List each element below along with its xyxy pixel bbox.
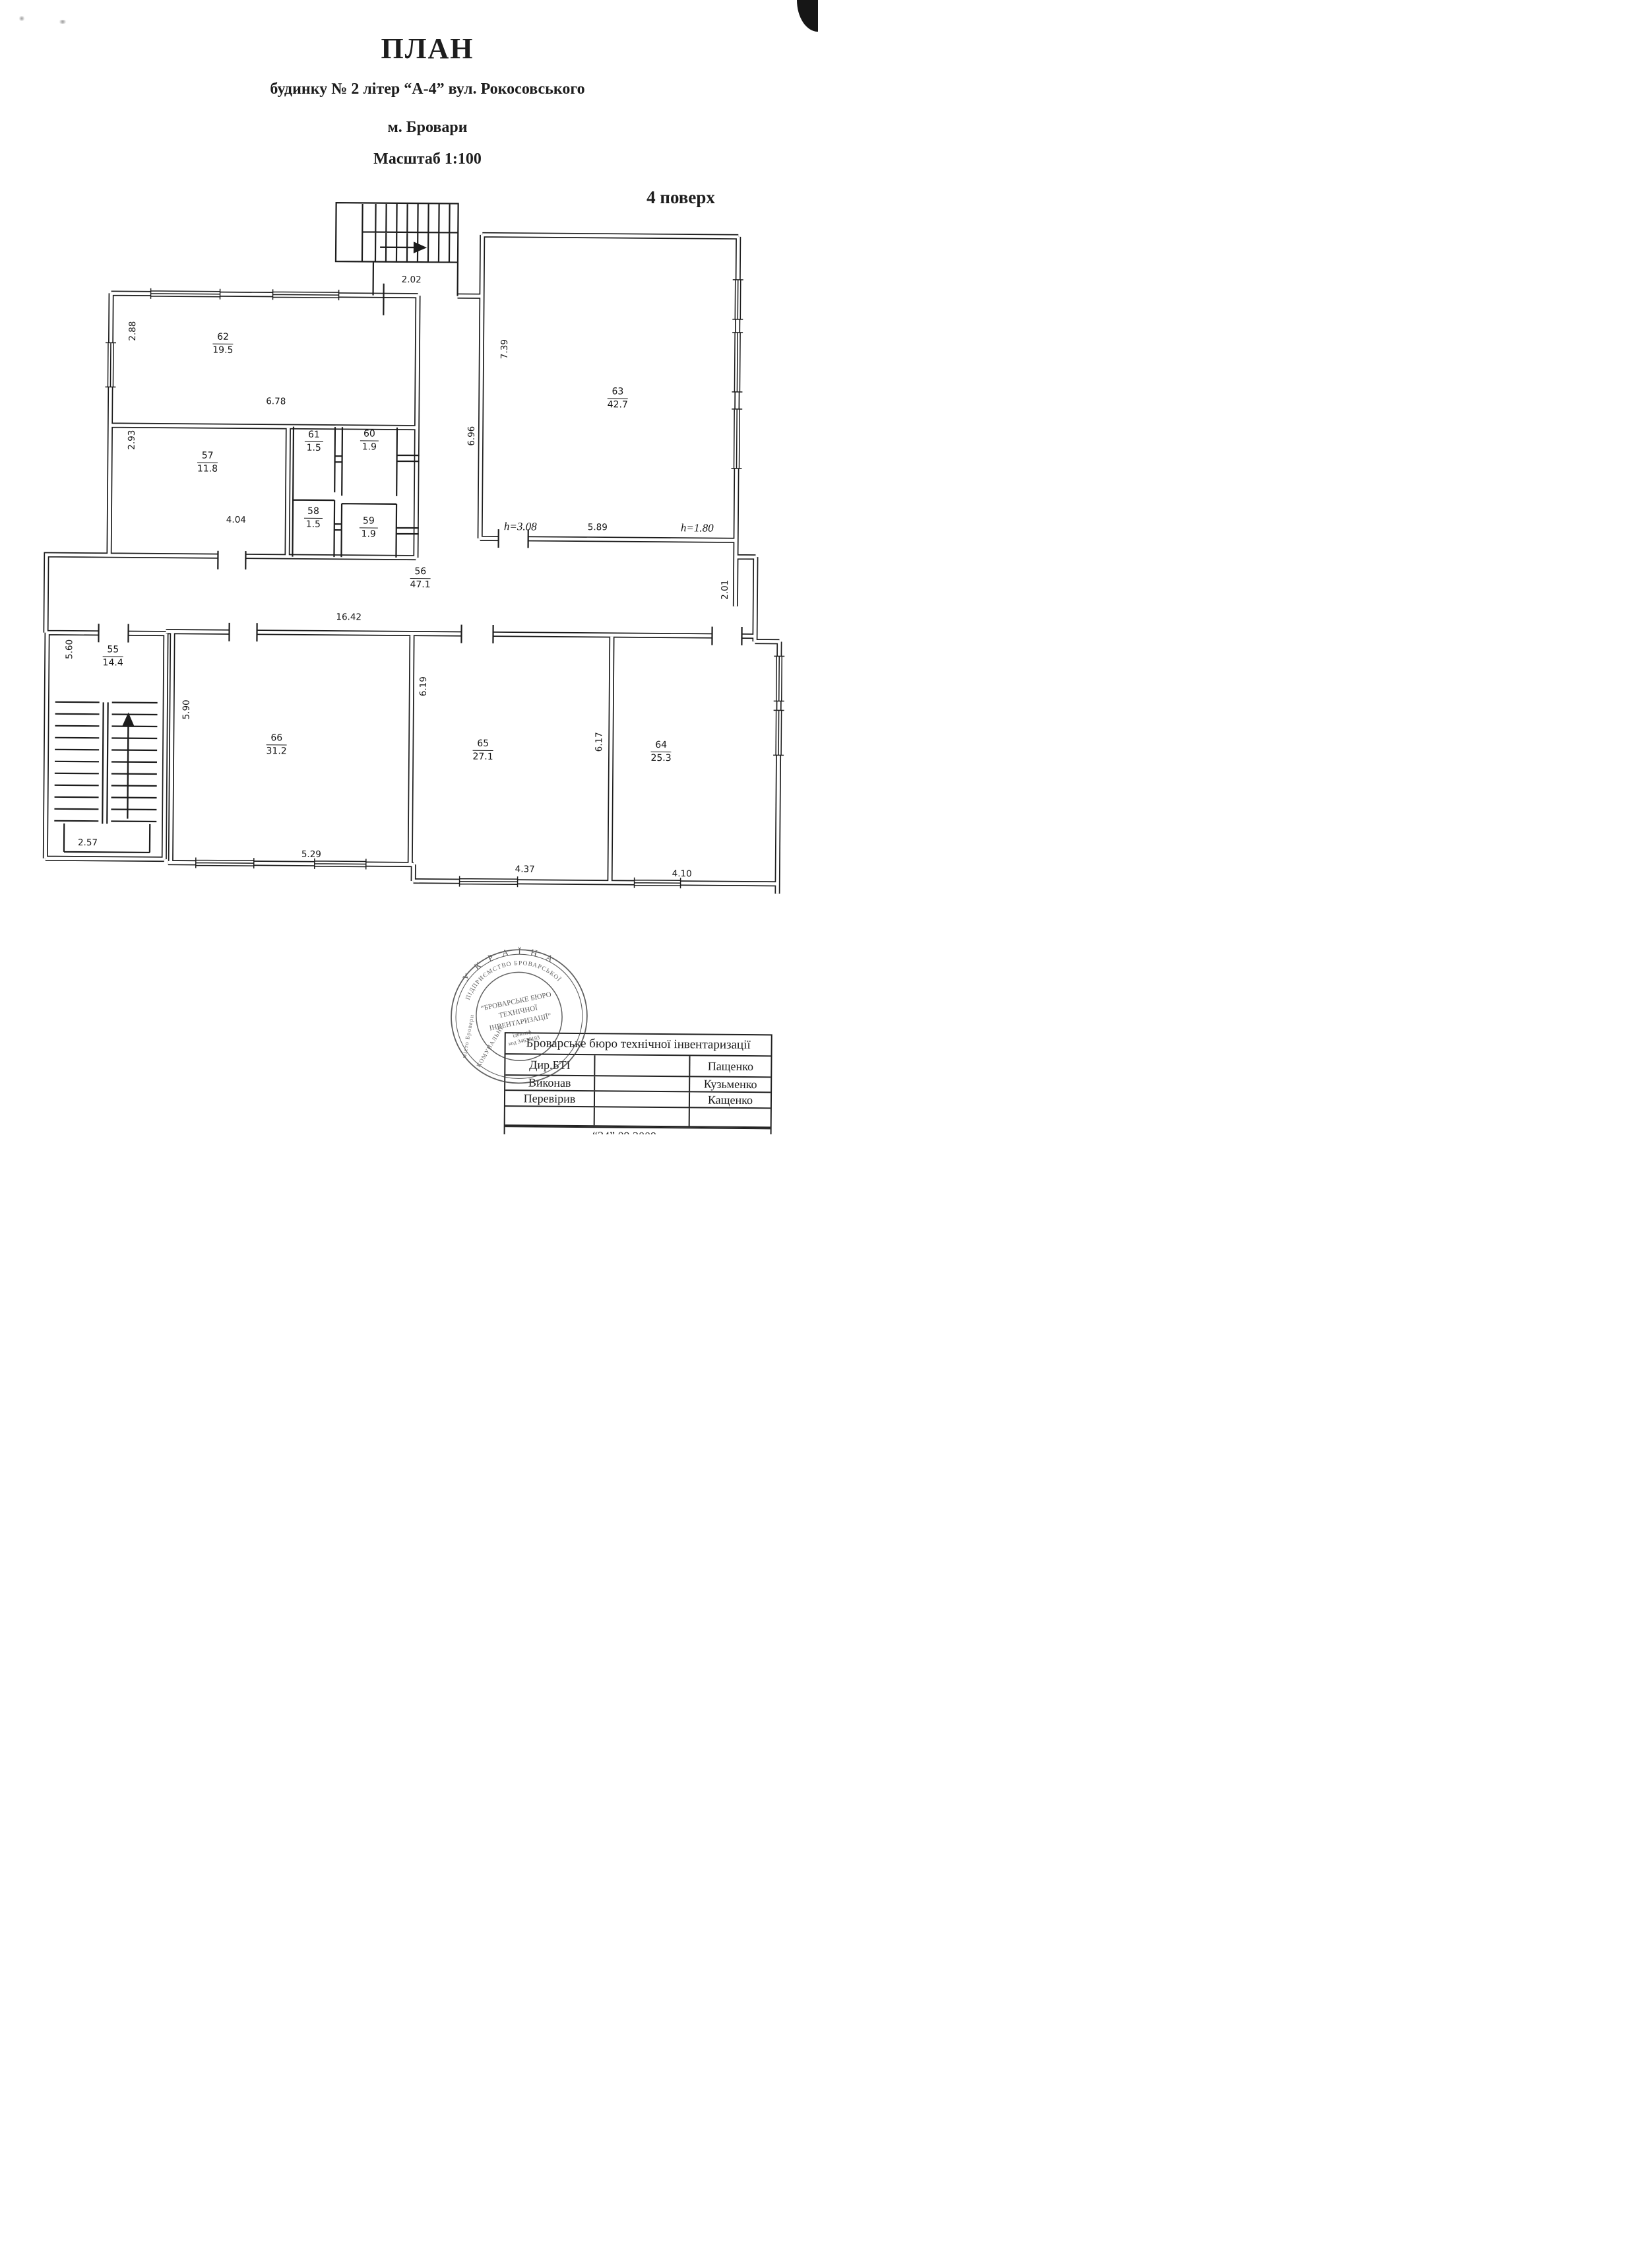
signature-cell (595, 1091, 690, 1107)
room-label-55: 5514.4 (103, 644, 123, 668)
dim-r55-width: 2.57 (78, 837, 98, 848)
dim-r66-width: 5.29 (301, 849, 321, 860)
room-label-58: 581.5 (304, 506, 323, 531)
bti-round-stamp: У К Р А Ї Н А ПІДПРИЄМСТВО БРОВАРСЬКОЇ м… (431, 928, 607, 1105)
dim-r65-left: 6.19 (418, 676, 429, 696)
name-cell: Пащенко (690, 1056, 771, 1076)
room-label-56: 5647.1 (410, 566, 430, 591)
stairs-and-partitions (54, 201, 745, 857)
scanned-floor-plan-page: ПЛАН будинку № 2 літер “А-4” вул. Рокосо… (0, 0, 818, 1134)
dim-r62-left: 2.88 (127, 321, 138, 341)
dim-corridor-right: 2.01 (720, 580, 730, 600)
stamp-left-lower-text: місто Бровари (460, 1014, 475, 1058)
walls-outer (44, 232, 782, 894)
signature-cell (595, 1076, 690, 1091)
dim-r57-left: 2.93 (127, 430, 137, 450)
dim-r57-width: 4.04 (226, 515, 246, 525)
table-row-empty (505, 1107, 771, 1128)
dim-corridor63-height: 6.96 (466, 426, 477, 446)
room-label-62: 6219.5 (212, 332, 233, 356)
room-label-66: 6631.2 (266, 732, 286, 757)
scan-skew-wrapper: 6219.5 5711.8 611.5 601.9 581.5 591.9 63… (0, 0, 818, 1134)
dim-r63-h-right: h=1.80 (681, 521, 714, 535)
name-cell: Кащенко (690, 1092, 771, 1107)
dim-vestibule-width: 2.02 (402, 275, 422, 285)
dim-r63-width: 5.89 (588, 522, 608, 533)
dim-corridor-width: 16.42 (336, 612, 362, 622)
room-label-60: 601.9 (360, 428, 379, 453)
room-label-63: 6342.7 (608, 386, 628, 410)
window-cores (104, 275, 786, 887)
dim-r64-width: 4.10 (672, 868, 692, 879)
room-label-59: 591.9 (360, 515, 378, 540)
name-cell: Кузьменко (690, 1077, 771, 1091)
dim-r62-width: 6.78 (266, 396, 286, 406)
floor-plan-drawing (0, 0, 818, 980)
scan-smudge (18, 16, 25, 21)
dim-r65-width: 4.37 (515, 864, 535, 874)
room-label-64: 6425.3 (650, 740, 671, 764)
room-label-57: 5711.8 (197, 450, 218, 474)
dim-r66-left: 5.90 (181, 699, 191, 719)
room-label-65: 6527.1 (472, 738, 493, 763)
window-glyphs (102, 275, 788, 889)
dim-r64-left: 6.17 (594, 732, 604, 752)
room-label-61: 611.5 (305, 430, 323, 454)
dim-r55-left: 5.60 (64, 639, 75, 659)
date-row: “24” 09 2009 року (505, 1126, 770, 1134)
signature-cell (595, 1055, 690, 1076)
dim-r63-h-left: h=3.08 (504, 520, 537, 533)
scan-smudge (58, 20, 67, 24)
dim-r63-left-height: 7.39 (499, 339, 510, 359)
